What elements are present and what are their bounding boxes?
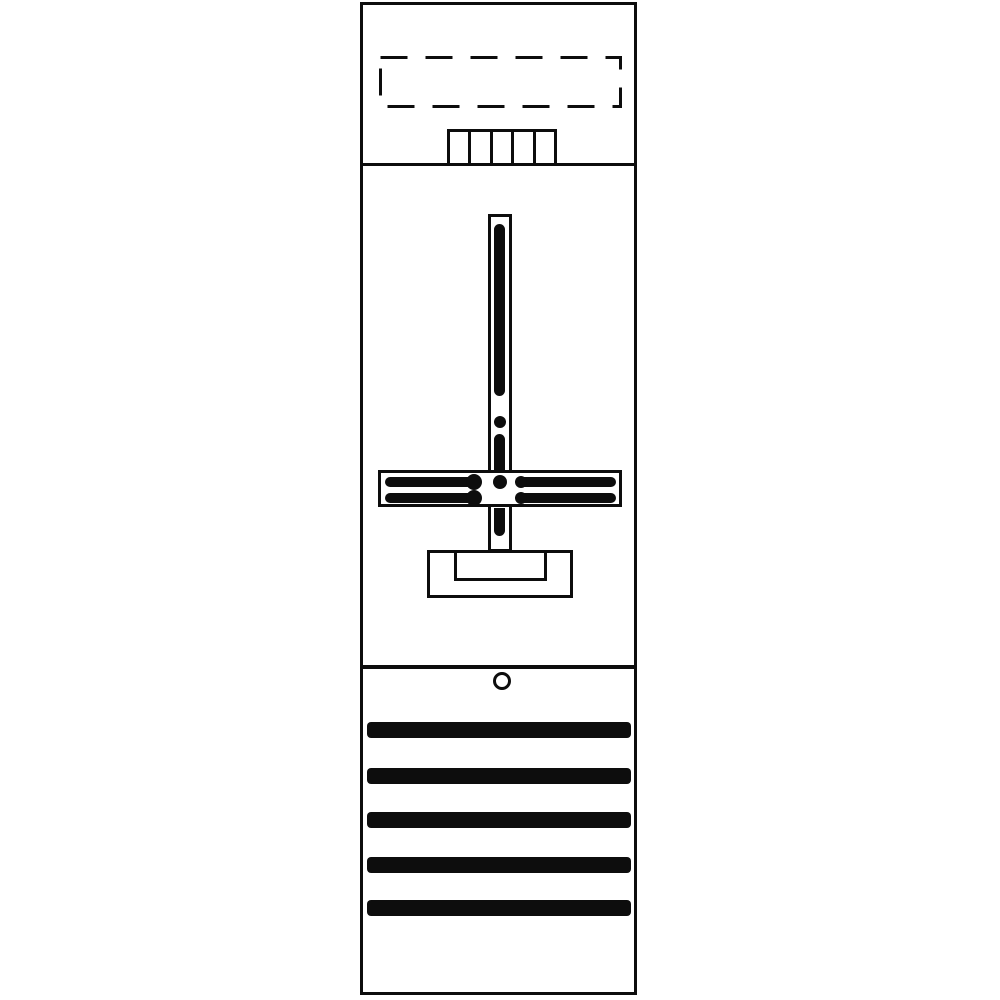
- terminal-block: [447, 129, 557, 166]
- cover-strip: [367, 900, 631, 916]
- cover-strip: [367, 722, 631, 738]
- dashed-rect: [381, 58, 621, 107]
- cover-strip: [367, 857, 631, 873]
- crossbar-center-dot: [493, 475, 507, 489]
- meter-panel-drawing: [0, 0, 1000, 1000]
- bottom-section-divider: [360, 665, 637, 669]
- busbar-segment: [494, 224, 505, 396]
- busbar-dot: [494, 416, 506, 428]
- cover-strip: [367, 768, 631, 784]
- mounting-bracket-inner: [454, 550, 547, 581]
- crossbar-stripe: [519, 493, 616, 503]
- crossbar-contact-dot: [515, 492, 527, 504]
- busbar-segment: [494, 434, 505, 470]
- crossbar-contact-dot: [466, 474, 482, 490]
- terminal-cell: [533, 129, 557, 166]
- cover-strip: [367, 812, 631, 828]
- top-section-divider: [360, 163, 637, 166]
- busbar-segment: [494, 508, 505, 536]
- screw-hole: [493, 672, 511, 690]
- crossbar-contact-dot: [466, 490, 482, 506]
- crossbar-contact-dot: [515, 476, 527, 488]
- crossbar-stripe: [519, 477, 616, 487]
- mounting-area-dashed-outline: [379, 56, 622, 108]
